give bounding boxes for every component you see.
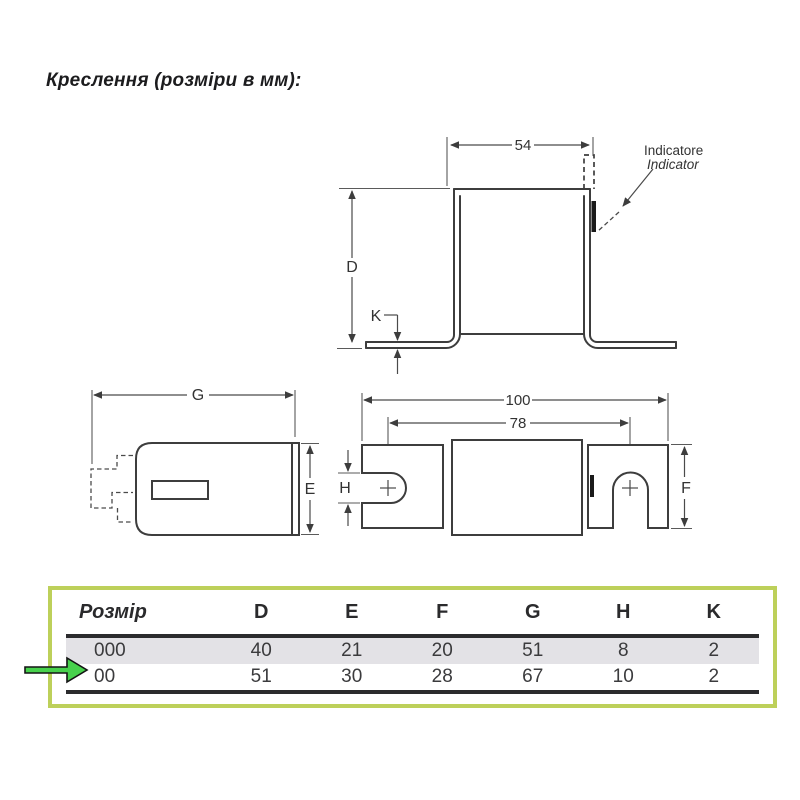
column-header-K: K xyxy=(669,601,760,624)
table-cell: 8 xyxy=(578,640,669,662)
indicator-leader-dashed xyxy=(598,212,619,231)
table-cell: 30 xyxy=(307,666,398,688)
row-pointer-arrow-shape xyxy=(25,658,87,682)
table-row-000: 000 40 21 20 51 8 2 xyxy=(66,638,759,664)
column-header-E: E xyxy=(307,601,398,624)
top-body xyxy=(452,440,582,535)
table-row-00: 00 51 30 28 67 10 2 xyxy=(66,664,759,690)
column-header-D: D xyxy=(216,601,307,624)
table-rule-bottom xyxy=(66,690,759,694)
page-title: Креслення (розміри в мм): xyxy=(46,70,302,92)
table-cell: 21 xyxy=(307,640,398,662)
side-label-window xyxy=(152,481,208,499)
table-cell: 40 xyxy=(216,640,307,662)
front-right-leg-outer xyxy=(584,196,676,348)
table-cell: 67 xyxy=(488,666,579,688)
side-indicator-dashed-tab xyxy=(118,508,134,522)
technical-drawing: 54 D K Indicatore Indicator xyxy=(0,110,800,570)
top-left-blade xyxy=(362,445,443,528)
size-table: Розмір D E F G H K 000 40 21 20 51 8 2 0… xyxy=(66,590,759,694)
front-left-leg-outer xyxy=(366,196,460,348)
top-right-blade xyxy=(588,445,668,528)
table-cell: 2 xyxy=(669,666,760,688)
table-header-row: Розмір D E F G H K xyxy=(66,590,759,634)
table-cell: 28 xyxy=(397,666,488,688)
side-view: G E xyxy=(91,387,319,535)
side-body xyxy=(136,443,299,535)
dim-label-G: G xyxy=(192,387,204,404)
dim-label-54: 54 xyxy=(515,137,532,154)
dim-label-100: 100 xyxy=(505,392,530,409)
table-cell: 20 xyxy=(397,640,488,662)
column-header-G: G xyxy=(488,601,579,624)
dim-label-E: E xyxy=(305,481,316,498)
table-cell: 51 xyxy=(488,640,579,662)
table-cell: 10 xyxy=(578,666,669,688)
side-indicator-dashed xyxy=(91,456,133,509)
row-pointer-arrow xyxy=(24,656,90,684)
column-header-H: H xyxy=(578,601,669,624)
center-cross xyxy=(380,480,638,496)
indicator-label-line1: Indicatore xyxy=(644,143,703,158)
table-cell: 2 xyxy=(669,640,760,662)
table-cell: 51 xyxy=(216,666,307,688)
indicator-dashed-outline xyxy=(584,155,594,189)
front-view: 54 D K Indicatore Indicator xyxy=(337,137,703,374)
column-header-size: Розмір xyxy=(66,601,216,624)
indicator-mark-top-view xyxy=(590,475,594,497)
page: Креслення (розміри в мм): xyxy=(0,0,800,800)
dim-label-F: F xyxy=(681,480,691,497)
dim-label-D: D xyxy=(346,259,358,276)
indicator-mark xyxy=(592,201,597,232)
dim-label-78: 78 xyxy=(510,415,527,432)
dim-label-H: H xyxy=(339,480,351,497)
column-header-F: F xyxy=(397,601,488,624)
top-view: 100 78 H F xyxy=(338,392,692,535)
indicator-leader-line xyxy=(623,169,653,206)
dim-label-K: K xyxy=(371,308,382,325)
indicator-label-line2: Indicator xyxy=(647,157,699,172)
front-right-leg-inner xyxy=(590,189,676,342)
